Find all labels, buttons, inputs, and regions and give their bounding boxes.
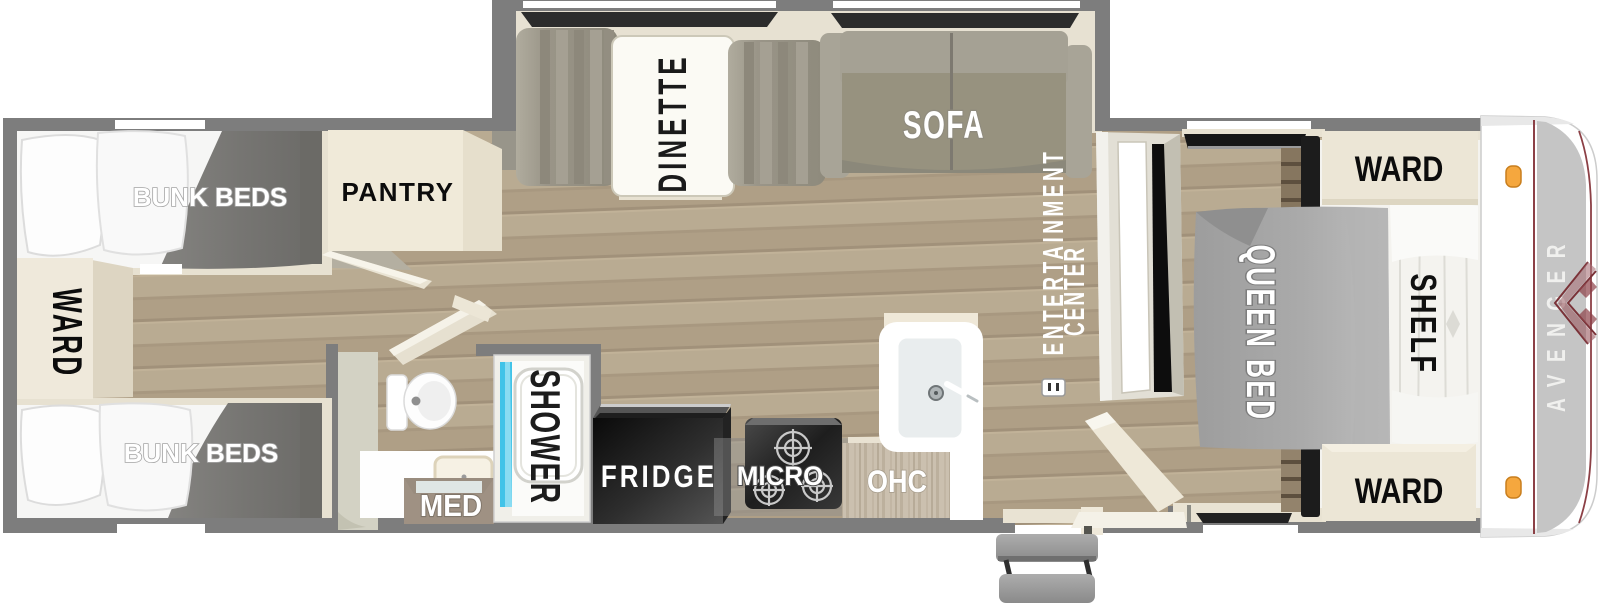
- svg-text:OHC: OHC: [867, 465, 927, 499]
- svg-text:WARD: WARD: [1355, 471, 1444, 510]
- svg-text:WARD: WARD: [43, 288, 89, 377]
- svg-text:FRIDGE: FRIDGE: [601, 460, 717, 495]
- svg-text:DINETTE: DINETTE: [650, 53, 695, 192]
- svg-text:MED: MED: [420, 489, 482, 524]
- svg-text:BUNK BEDS: BUNK BEDS: [124, 438, 279, 468]
- svg-text:SHELF: SHELF: [1403, 274, 1444, 375]
- svg-text:PANTRY: PANTRY: [342, 177, 455, 207]
- svg-text:BUNK BEDS: BUNK BEDS: [133, 182, 288, 212]
- svg-text:SHOWER: SHOWER: [522, 370, 569, 505]
- svg-text:QUEEN BED: QUEEN BED: [1237, 244, 1282, 421]
- svg-text:MICRO: MICRO: [737, 460, 824, 491]
- svg-text:CENTER: CENTER: [1059, 246, 1091, 336]
- svg-text:WARD: WARD: [1355, 149, 1444, 188]
- svg-text:AVENGER: AVENGER: [1542, 232, 1570, 412]
- svg-text:SOFA: SOFA: [903, 103, 985, 147]
